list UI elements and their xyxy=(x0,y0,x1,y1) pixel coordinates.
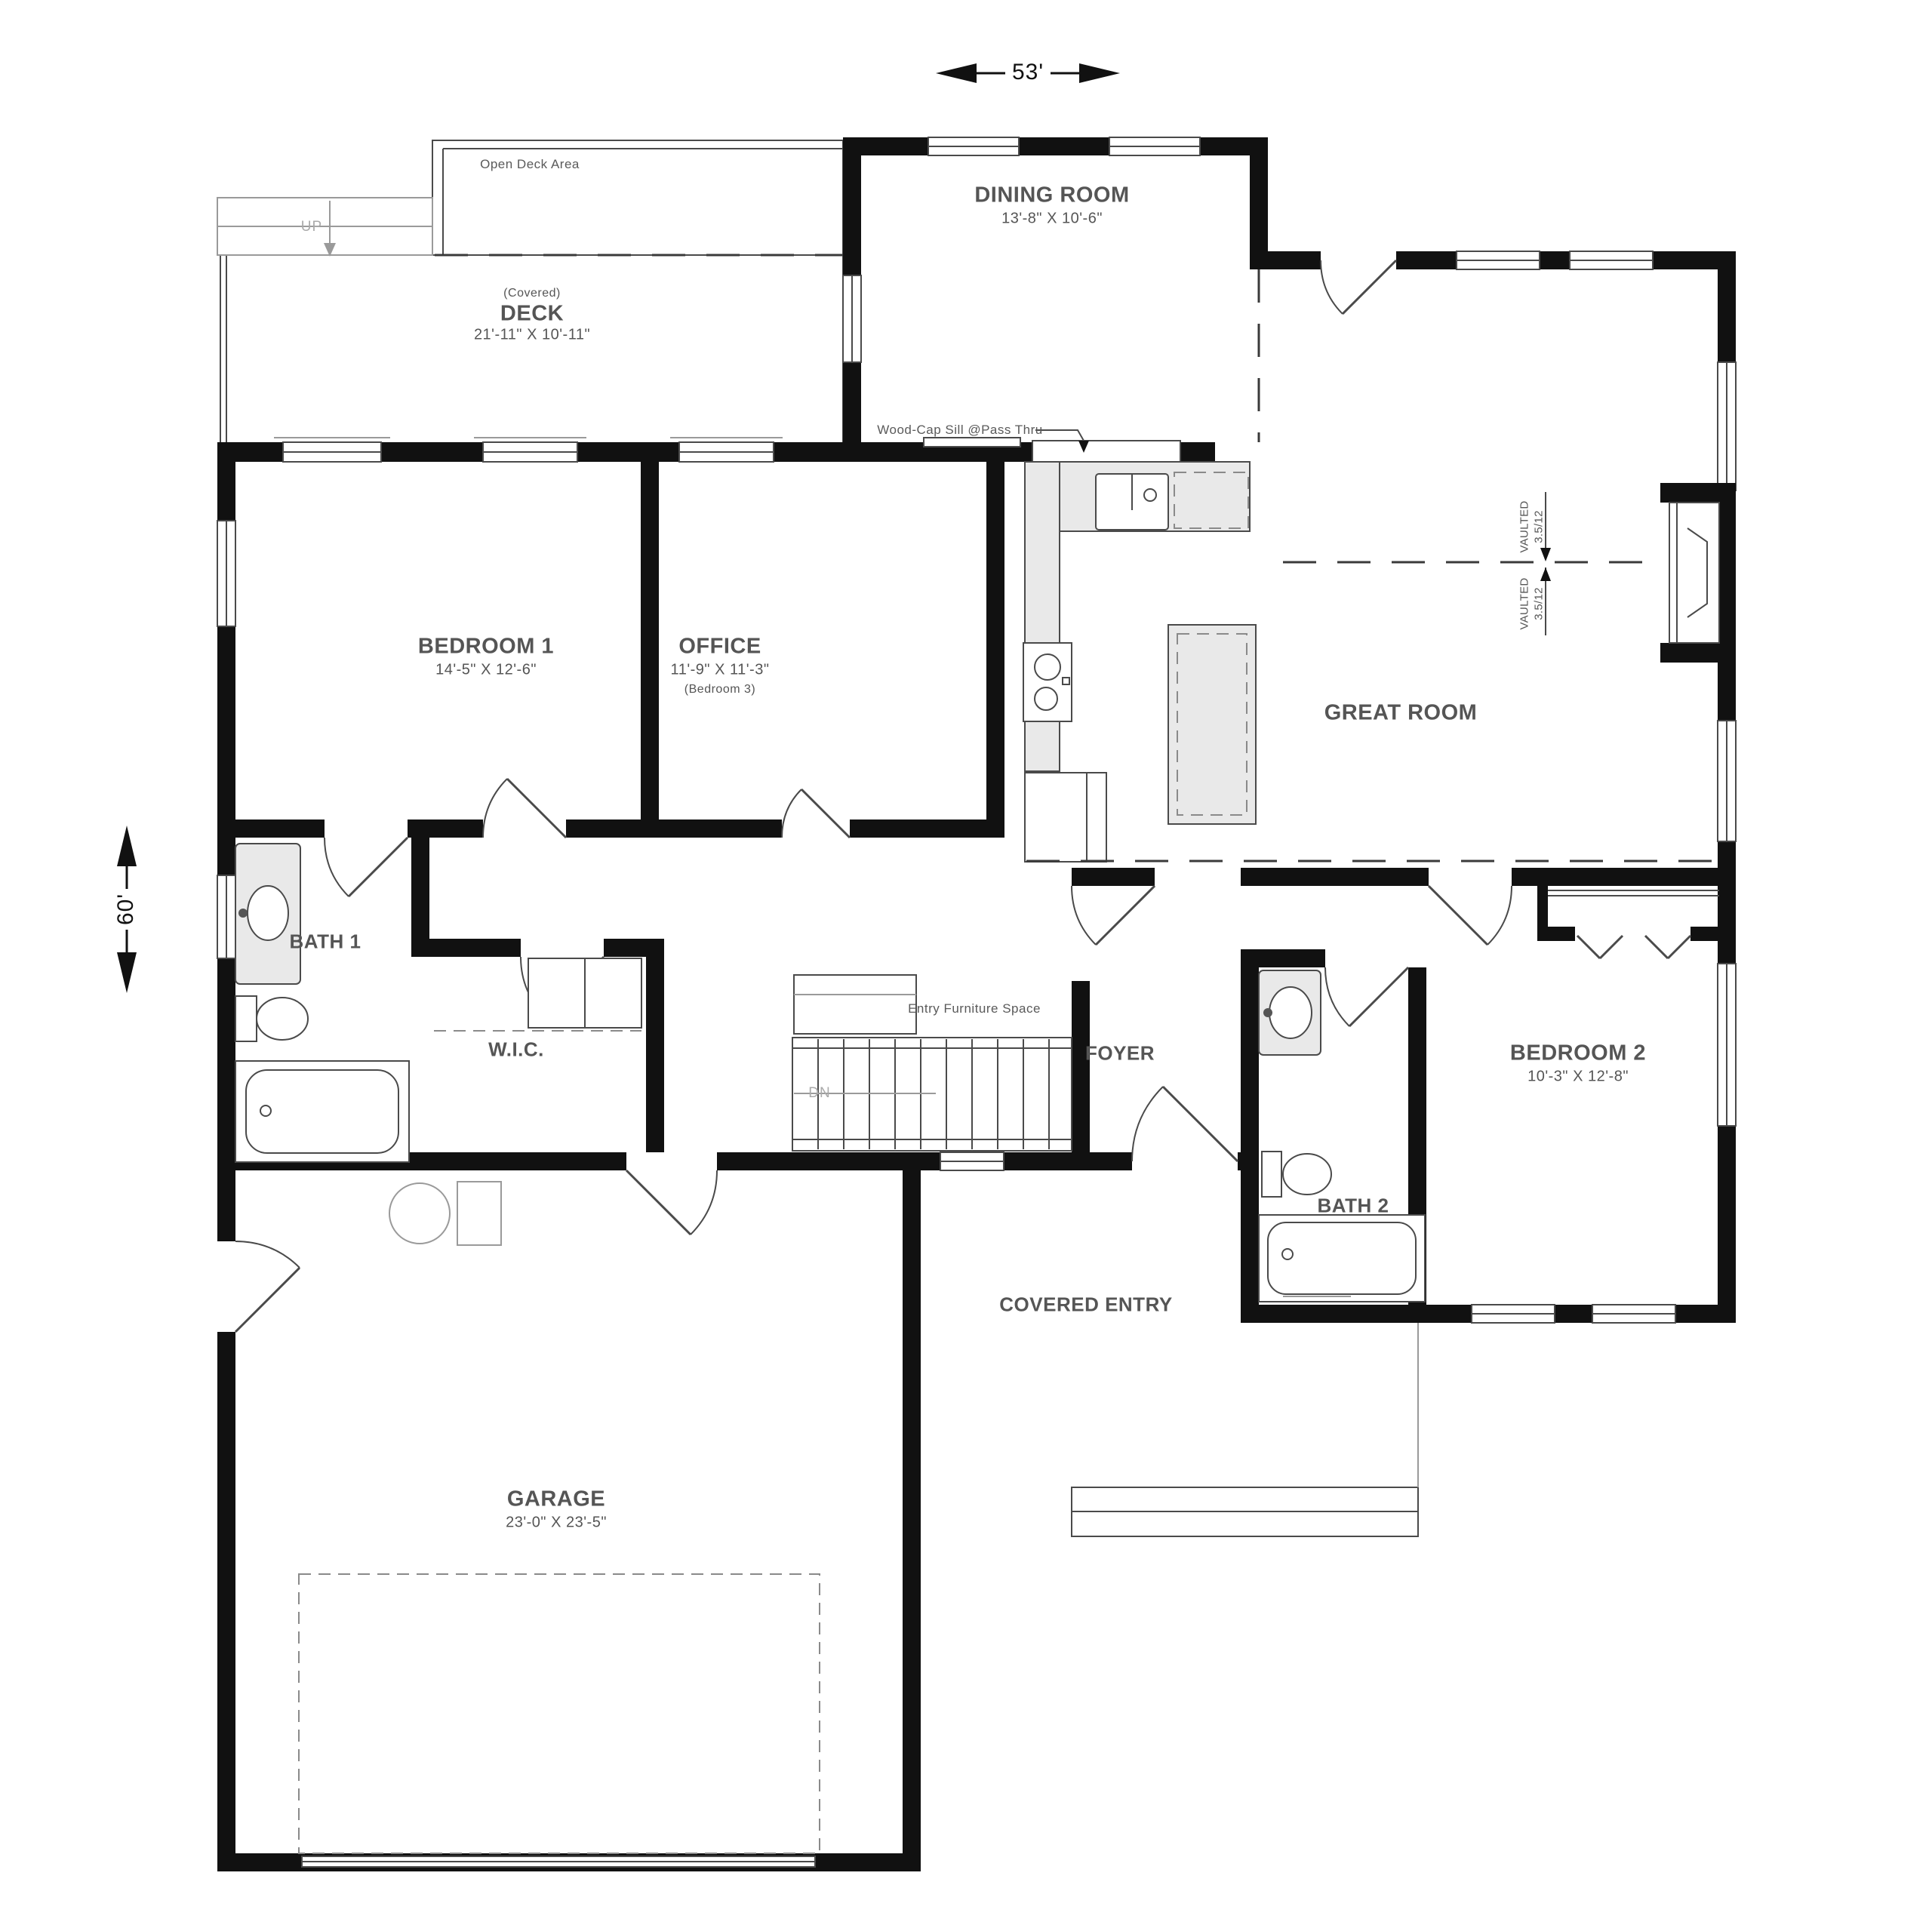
bedroom2-door xyxy=(1487,886,1512,945)
stairs-up-label: UP xyxy=(301,219,322,235)
bath2-fixtures xyxy=(1259,970,1425,1302)
deck-size: 21'-11" X 10'-11" xyxy=(474,327,590,344)
vault-pitch-text: 3.5/12 xyxy=(1532,500,1546,552)
vault-pitch-text: 3.5/12 xyxy=(1532,577,1546,629)
bedroom2-closet-doors xyxy=(1548,890,1719,958)
deck-qualifier: (Covered) xyxy=(503,287,561,300)
foyer-closet-door xyxy=(1072,886,1096,945)
deck-label: DECK xyxy=(500,302,564,327)
bedroom1-label: BEDROOM 1 xyxy=(418,635,554,660)
bedroom1-size: 14'-5" X 12'-6" xyxy=(435,662,537,679)
height-dimension: 60' xyxy=(113,893,139,925)
front-door xyxy=(1132,1087,1163,1161)
bath1-fixtures xyxy=(235,844,409,1162)
bath1-sink xyxy=(248,886,288,940)
porch-steps xyxy=(1072,1323,1418,1536)
wic-label: W.I.C. xyxy=(488,1038,544,1062)
deck-stairs xyxy=(217,198,432,257)
vaulted-label: VAULTED 3.5/12 xyxy=(1518,577,1546,629)
width-dimension: 53' xyxy=(1012,60,1044,85)
wood-cap-ledge xyxy=(924,438,1020,447)
floor-plan-drawing xyxy=(0,0,1932,1925)
wic-features xyxy=(434,958,641,1031)
garage-label: GARAGE xyxy=(507,1487,605,1512)
bedroom2-label: BEDROOM 2 xyxy=(1510,1041,1646,1066)
bath1-toilet-tank xyxy=(235,996,257,1041)
great-room-features xyxy=(1283,483,1736,663)
office-size: 11'-9" X 11'-3" xyxy=(671,662,770,679)
bath2-door xyxy=(1325,967,1349,1026)
bath2-label: BATH 2 xyxy=(1318,1195,1389,1218)
bath1-label: BATH 1 xyxy=(290,930,361,954)
vaulted-text: VAULTED xyxy=(1518,577,1532,629)
stairs-down-label: DN xyxy=(808,1085,830,1102)
kitchen xyxy=(1023,269,1718,862)
water-heater xyxy=(389,1183,450,1244)
garage-parking-zone xyxy=(299,1574,820,1853)
bedroom2-size: 10'-3" X 12'-8" xyxy=(1527,1069,1629,1086)
faucet-icon xyxy=(1263,1008,1272,1017)
entry-furniture-label: Entry Furniture Space xyxy=(908,1001,1041,1016)
furnace xyxy=(457,1182,501,1245)
stairs xyxy=(792,1038,1072,1151)
garage-size: 23'-0" X 23'-5" xyxy=(506,1514,607,1532)
kitchen-counter-left xyxy=(1025,462,1060,771)
bath2-toilet xyxy=(1283,1154,1331,1195)
vaulted-text: VAULTED xyxy=(1518,500,1532,552)
office-alt-label: (Bedroom 3) xyxy=(685,683,755,697)
garage-interior-door xyxy=(691,1170,717,1235)
bath2-sink xyxy=(1269,987,1312,1038)
bath1-toilet xyxy=(257,998,308,1040)
bath2-toilet-tank xyxy=(1262,1152,1281,1197)
floor-plan: 53' 60' Open Deck Area (Covered) DECK 21… xyxy=(0,0,1932,1925)
vaulted-label: VAULTED 3.5/12 xyxy=(1518,500,1546,552)
kitchen-island xyxy=(1168,625,1256,824)
dining-room-size: 13'-8" X 10'-6" xyxy=(1001,211,1103,228)
wood-cap-label: Wood-Cap Sill @Pass Thru xyxy=(877,423,1043,438)
entry-niche xyxy=(794,975,916,1034)
office-label: OFFICE xyxy=(678,635,761,660)
faucet-icon xyxy=(238,909,248,918)
garage-side-door xyxy=(235,1241,300,1268)
open-deck-label: Open Deck Area xyxy=(480,157,580,172)
refrigerator xyxy=(1025,773,1106,862)
dining-room-label: DINING ROOM xyxy=(974,183,1129,208)
bath1-door xyxy=(325,838,349,896)
covered-entry-label: COVERED ENTRY xyxy=(999,1293,1172,1317)
bath1-tub xyxy=(235,1061,409,1162)
great-room-label: GREAT ROOM xyxy=(1324,701,1478,726)
foyer-label: FOYER xyxy=(1085,1042,1155,1066)
